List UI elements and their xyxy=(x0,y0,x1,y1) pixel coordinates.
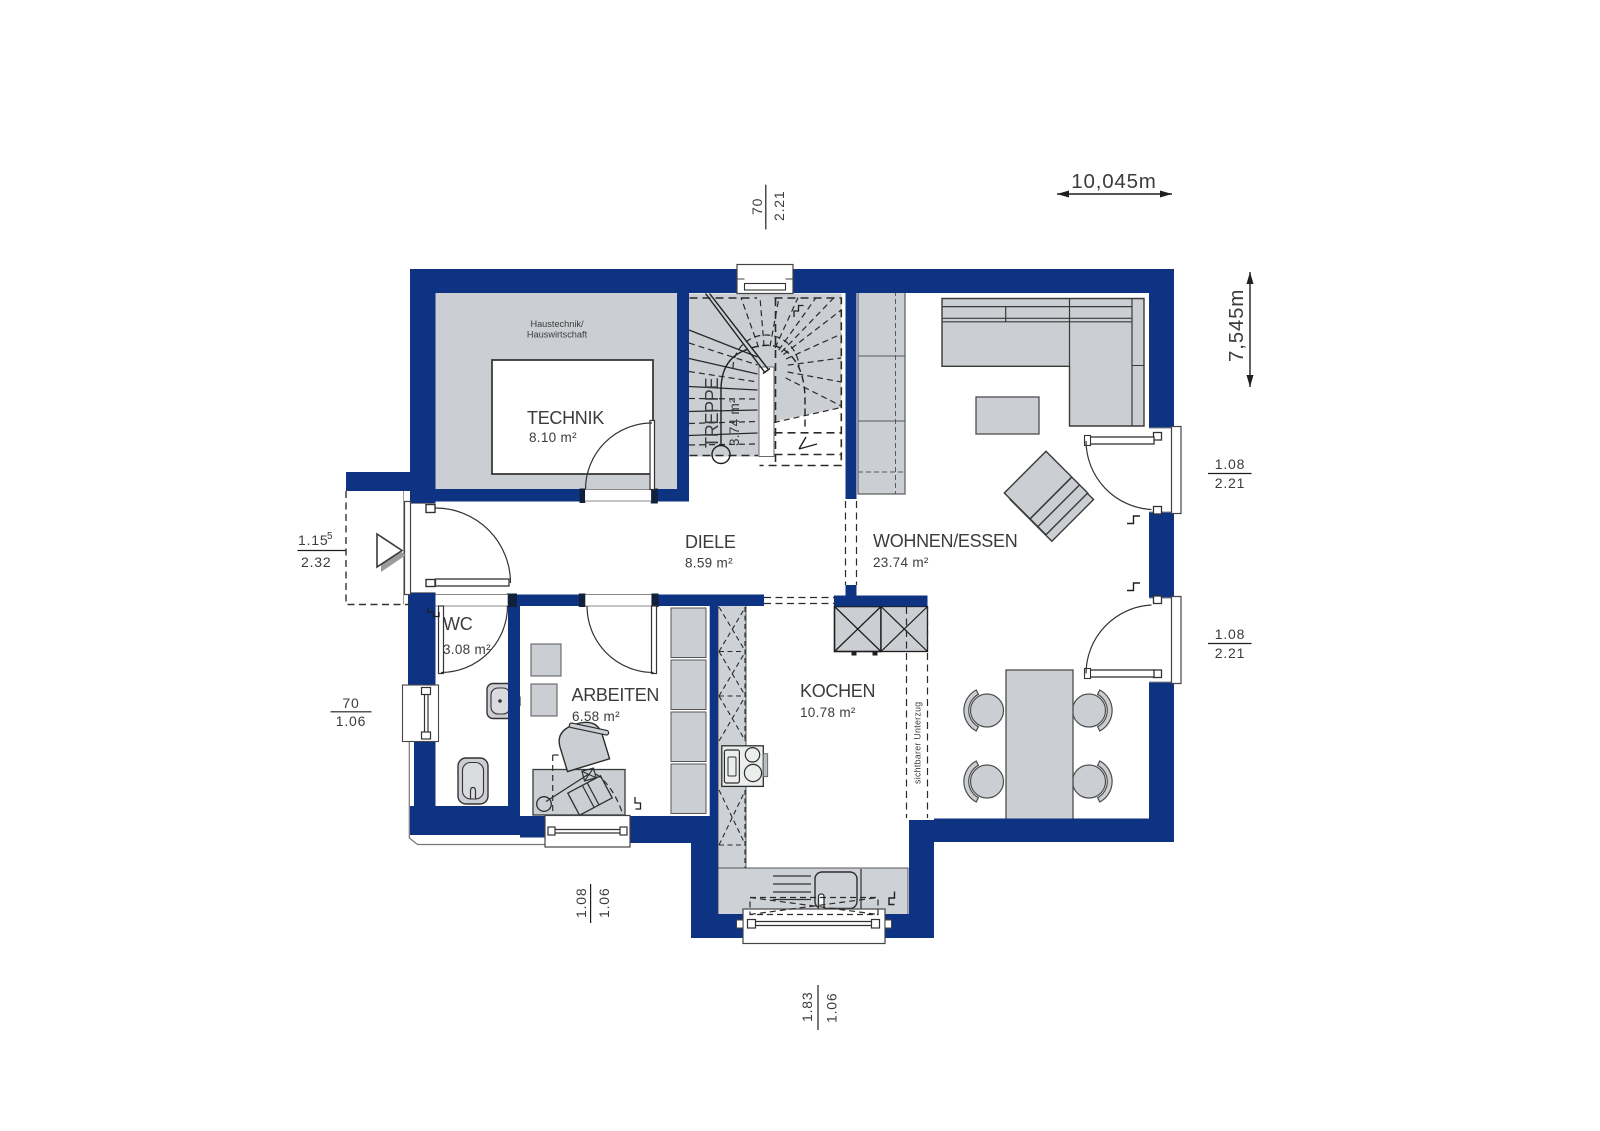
svg-text:3.08 m²: 3.08 m² xyxy=(443,642,491,657)
svg-text:10,045m: 10,045m xyxy=(1071,170,1156,193)
svg-text:KOCHEN: KOCHEN xyxy=(800,681,875,701)
svg-text:TREPPE: TREPPE xyxy=(702,377,722,448)
svg-text:5: 5 xyxy=(327,531,333,542)
svg-text:ARBEITEN: ARBEITEN xyxy=(572,685,660,705)
svg-text:TECHNIK: TECHNIK xyxy=(527,408,604,428)
svg-text:6.58 m²: 6.58 m² xyxy=(572,709,620,724)
svg-text:sichtbarer Unterzug: sichtbarer Unterzug xyxy=(913,702,923,784)
svg-text:2.21: 2.21 xyxy=(771,191,787,221)
svg-text:1.06: 1.06 xyxy=(824,993,840,1023)
svg-text:70: 70 xyxy=(749,198,765,215)
svg-text:Hauswirtschaft: Hauswirtschaft xyxy=(527,330,588,340)
svg-text:1.15: 1.15 xyxy=(298,532,328,548)
svg-text:70: 70 xyxy=(342,695,359,711)
svg-text:2.21: 2.21 xyxy=(1215,645,1245,661)
svg-text:1.08: 1.08 xyxy=(573,888,589,918)
svg-text:1.08: 1.08 xyxy=(1215,456,1245,472)
svg-text:2.32: 2.32 xyxy=(301,554,331,570)
svg-text:1.06: 1.06 xyxy=(596,888,612,918)
svg-text:DIELE: DIELE xyxy=(685,532,736,552)
svg-text:7,545m: 7,545m xyxy=(1225,289,1248,362)
svg-text:10.78 m²: 10.78 m² xyxy=(800,705,856,720)
svg-text:Haustechnik/: Haustechnik/ xyxy=(530,319,584,329)
svg-text:WC: WC xyxy=(443,614,473,634)
svg-text:1.06: 1.06 xyxy=(336,713,366,729)
svg-text:8.59 m²: 8.59 m² xyxy=(685,556,733,571)
svg-text:8.10 m²: 8.10 m² xyxy=(529,430,577,445)
svg-text:23.74 m²: 23.74 m² xyxy=(873,555,929,570)
svg-text:WOHNEN/ESSEN: WOHNEN/ESSEN xyxy=(873,531,1017,551)
svg-text:3.74 m²: 3.74 m² xyxy=(727,398,742,446)
svg-text:2.21: 2.21 xyxy=(1215,475,1245,491)
svg-text:1.08: 1.08 xyxy=(1215,626,1245,642)
svg-text:1.83: 1.83 xyxy=(799,992,815,1022)
